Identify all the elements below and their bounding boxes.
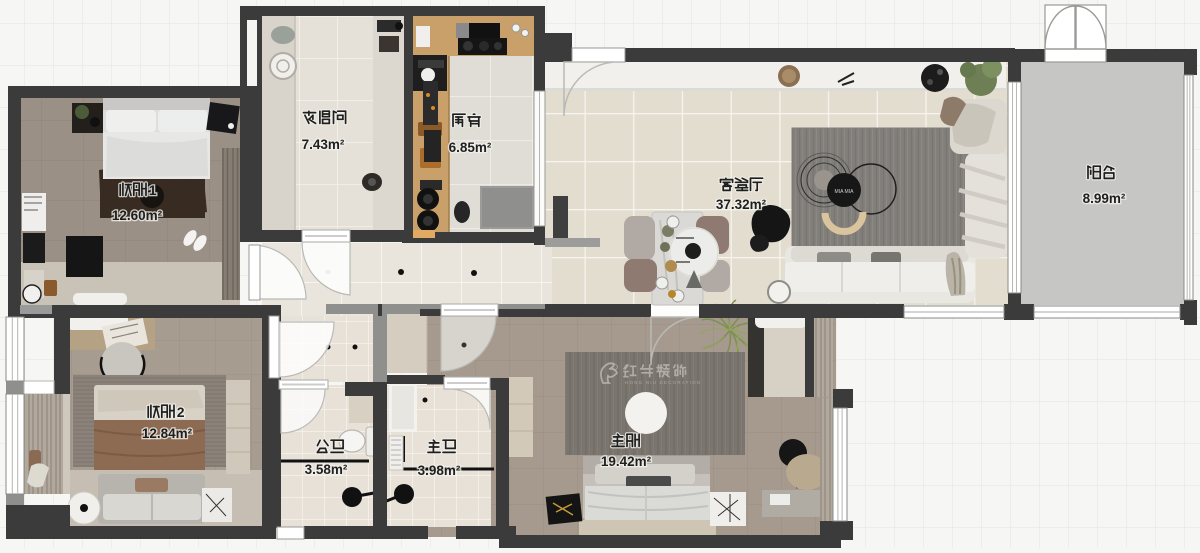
svg-text:12.60m²: 12.60m² xyxy=(112,208,163,223)
svg-text:7.43m²: 7.43m² xyxy=(302,137,345,152)
svg-text:37.32m²: 37.32m² xyxy=(716,197,767,212)
svg-text:12.84m²: 12.84m² xyxy=(142,426,193,441)
svg-text:MIA MIA: MIA MIA xyxy=(835,189,855,195)
svg-text:2: 2 xyxy=(177,404,185,420)
svg-text:8.99m²: 8.99m² xyxy=(1083,191,1126,206)
svg-text:19.42m²: 19.42m² xyxy=(601,454,652,469)
svg-text:1: 1 xyxy=(149,182,157,198)
svg-text:3.98m²: 3.98m² xyxy=(418,463,461,478)
svg-text:HONG NIU DECORATION: HONG NIU DECORATION xyxy=(625,380,701,385)
svg-text:3.58m²: 3.58m² xyxy=(305,462,348,477)
svg-text:6.85m²: 6.85m² xyxy=(449,140,492,155)
